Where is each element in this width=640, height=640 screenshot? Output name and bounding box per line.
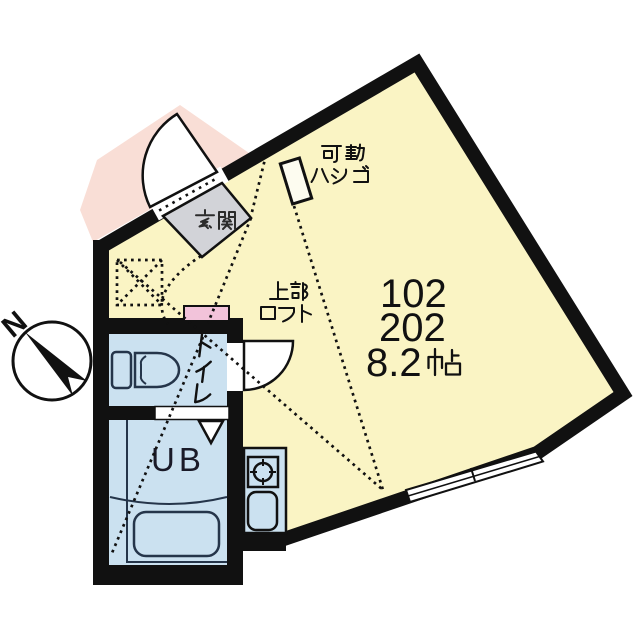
svg-text:8.2: 8.2 (366, 341, 422, 385)
svg-text:UB: UB (151, 441, 205, 478)
